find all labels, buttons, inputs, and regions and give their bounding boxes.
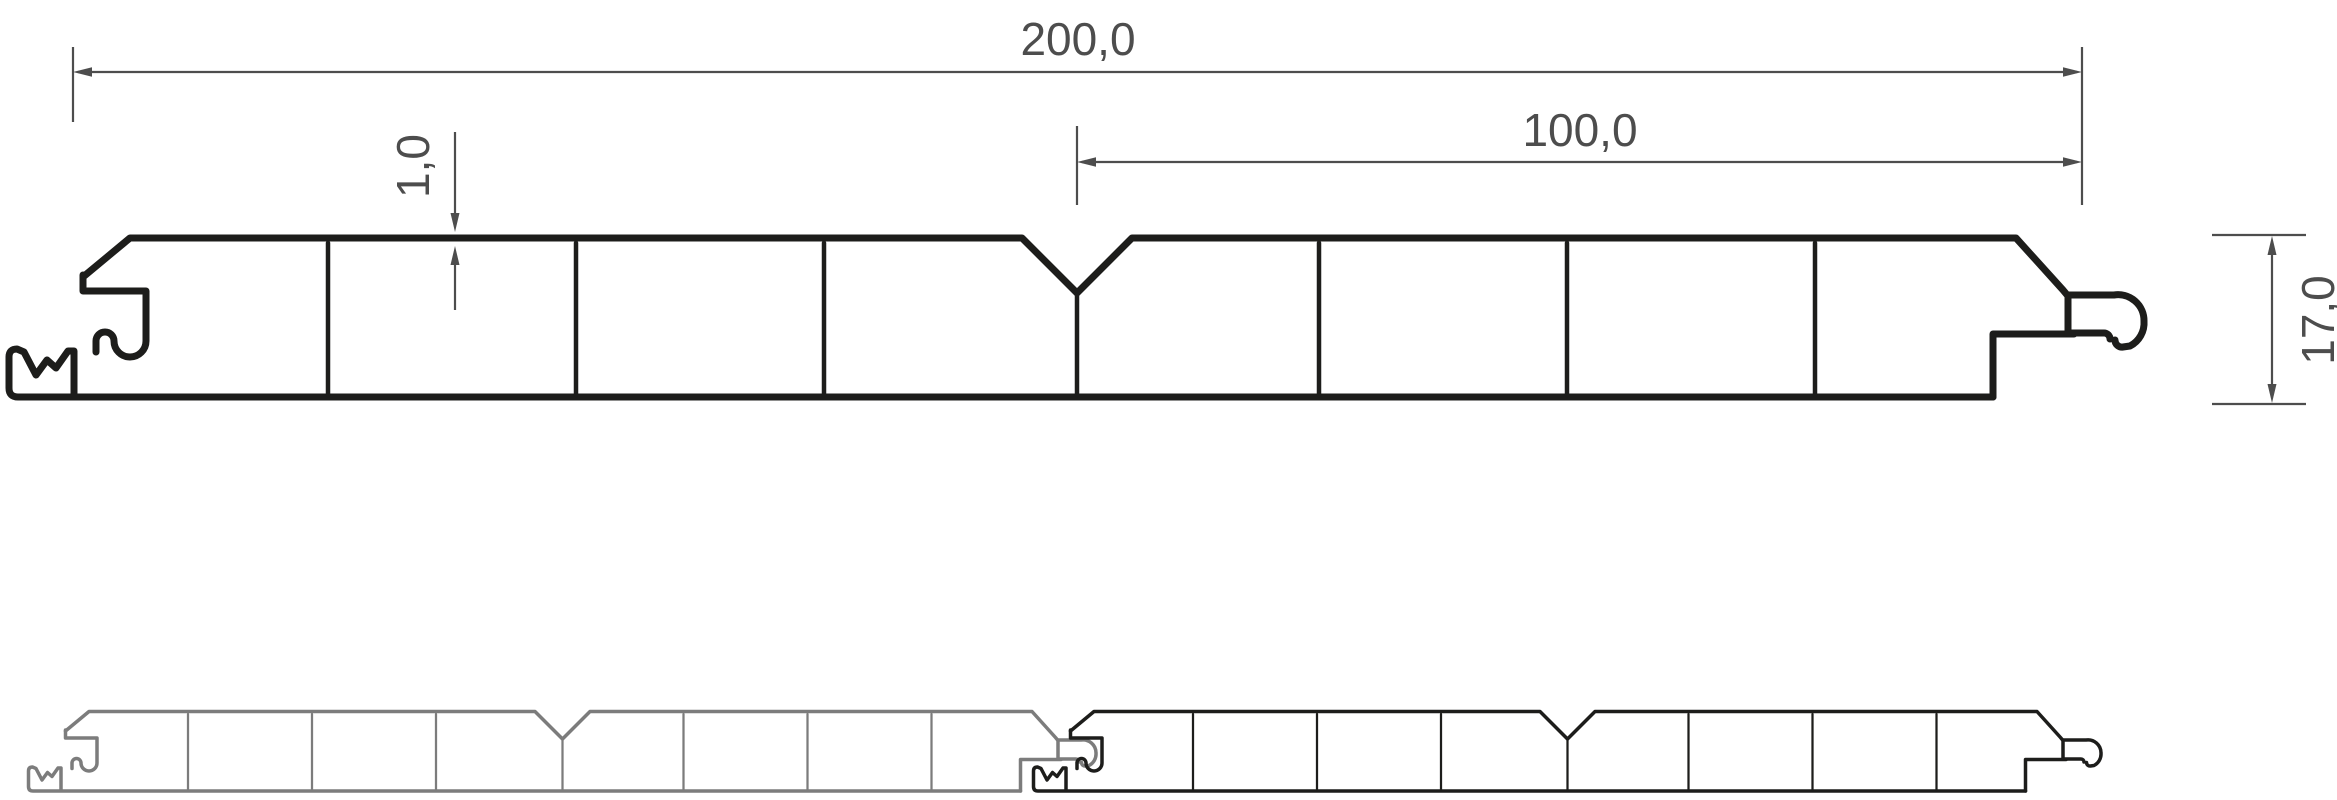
dimension-annotations: 200,0 100,0 1,0 17,0 (73, 13, 2337, 404)
arrowhead-right-icon (2063, 157, 2082, 167)
arrowhead-up-icon (2268, 236, 2277, 255)
joined-panel-left-group (29, 712, 1097, 792)
arrowhead-down-icon (451, 213, 460, 232)
main-profile-group (9, 238, 2144, 397)
joined-panels-group (29, 712, 2102, 792)
main-profile (9, 238, 2144, 397)
arrowhead-up-icon (451, 246, 460, 265)
dim-label-half-width: 100,0 (1522, 104, 1637, 156)
arrowhead-left-icon (1077, 157, 1096, 167)
drawing-canvas: 200,0 100,0 1,0 17,0 (0, 0, 2337, 800)
dim-label-wall-thickness: 1,0 (387, 134, 439, 198)
arrowhead-left-icon (73, 67, 92, 77)
arrowhead-down-icon (2268, 384, 2277, 403)
joined-panel-right (1034, 712, 2102, 792)
dim-label-profile-height: 17,0 (2292, 275, 2337, 365)
joined-panel-right-group (1034, 712, 2102, 792)
panel-profile-drawing: 200,0 100,0 1,0 17,0 (0, 0, 2337, 800)
arrowhead-right-icon (2063, 67, 2082, 77)
joined-panel-left (29, 712, 1097, 792)
dim-label-overall-width: 200,0 (1020, 13, 1135, 65)
